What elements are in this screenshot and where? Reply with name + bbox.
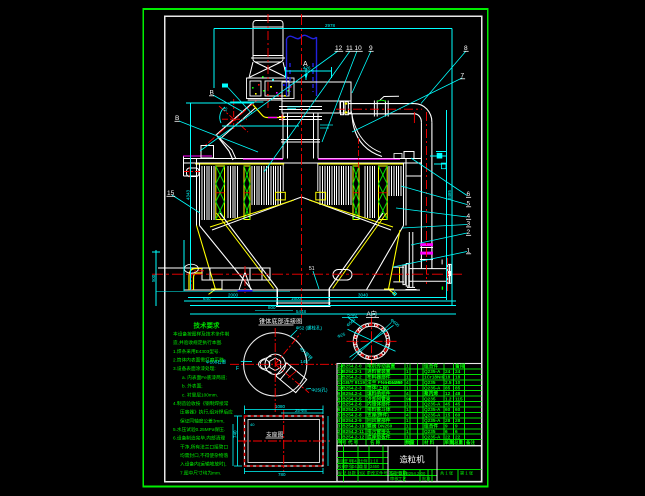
svg-text:25-Φ8: 25-Φ8: [295, 408, 307, 413]
svg-text:2000: 2000: [228, 292, 239, 297]
svg-text:1: 1: [338, 434, 341, 439]
svg-text:Φ25(孔): Φ25(孔): [311, 387, 328, 394]
svg-text:12: 12: [445, 391, 451, 396]
svg-text:9: 9: [455, 424, 458, 429]
svg-text:24: 24: [445, 369, 451, 374]
svg-text:1.2: 1.2: [445, 396, 452, 401]
svg-text:1: 1: [406, 364, 409, 369]
svg-text:4: 4: [406, 413, 409, 418]
svg-text:6.设备制造完毕,内部清理: 6.设备制造完毕,内部清理: [173, 435, 225, 442]
svg-text:96: 96: [406, 396, 412, 401]
svg-text:B254.2-12: B254.2-12: [342, 434, 364, 439]
svg-text:22: 22: [445, 434, 451, 439]
svg-text:A向: A向: [367, 310, 377, 318]
svg-text:Q235-A: Q235-A: [424, 434, 441, 439]
svg-text:2978: 2978: [325, 23, 336, 28]
svg-text:45: 45: [455, 402, 461, 407]
svg-text:60: 60: [455, 407, 461, 412]
svg-text:85: 85: [445, 385, 451, 390]
svg-text:1: 1: [406, 434, 409, 439]
svg-text:1600: 1600: [291, 296, 302, 301]
svg-text:22: 22: [455, 434, 461, 439]
svg-text:F: F: [236, 366, 239, 372]
svg-text:Q235-A: Q235-A: [424, 418, 441, 423]
svg-text:B254.2-6: B254.2-6: [342, 402, 362, 407]
svg-text:2.5: 2.5: [445, 380, 452, 385]
svg-text:15: 15: [445, 413, 451, 418]
svg-text:GB/T 9119: GB/T 9119: [342, 380, 365, 385]
svg-text:本设备按图样及技术条件制: 本设备按图样及技术条件制: [173, 331, 230, 338]
svg-text:a. 内表面Fe底漆两道;: a. 内表面Fe底漆两道;: [182, 374, 227, 381]
svg-text:工艺: 工艺: [398, 476, 406, 481]
svg-text:第 1 张: 第 1 张: [460, 470, 474, 477]
svg-text:Q235-A: Q235-A: [424, 385, 441, 390]
svg-text:4343: 4343: [186, 189, 191, 200]
svg-text:HG20593: HG20593: [386, 381, 402, 385]
svg-text:24: 24: [455, 369, 461, 374]
svg-text:Q235: Q235: [424, 380, 436, 385]
svg-text:5: 5: [338, 413, 341, 418]
svg-text:B254.2-9: B254.2-9: [342, 418, 362, 423]
svg-text:锥体底部连接图: 锥体底部连接图: [259, 318, 302, 326]
svg-text:1: 1: [406, 429, 409, 434]
svg-text:2.筒体内表面需打磨平整.: 2.筒体内表面需打磨平整.: [173, 357, 225, 364]
svg-text:6: 6: [338, 407, 341, 412]
svg-text:3.设备表面涂漆处理:: 3.设备表面涂漆处理:: [173, 365, 216, 372]
svg-text:145°: 145°: [300, 359, 310, 364]
svg-text:造,并验收规定执行本图.: 造,并验收规定执行本图.: [173, 339, 222, 346]
svg-text:B254.2-2: B254.2-2: [342, 375, 362, 380]
svg-text:共 1 张: 共 1 张: [440, 470, 454, 477]
svg-text:1: 1: [406, 385, 409, 390]
svg-text:4: 4: [338, 418, 341, 423]
svg-text:c. 衬里层100mm.: c. 衬里层100mm.: [182, 391, 218, 398]
svg-text:B254.2-3: B254.2-3: [342, 385, 362, 390]
svg-text:28: 28: [445, 418, 451, 423]
svg-text:18: 18: [455, 375, 461, 380]
svg-text:51: 51: [309, 266, 315, 272]
svg-text:均需封口,不得使杂物落: 均需封口,不得使杂物落: [180, 452, 228, 459]
svg-text:干净,所有法兰口接管口: 干净,所有法兰口接管口: [180, 443, 228, 450]
svg-text:1: 1: [406, 424, 409, 429]
svg-text:45: 45: [445, 402, 451, 407]
svg-text:Q235: Q235: [424, 429, 436, 434]
svg-text:800: 800: [268, 305, 276, 310]
svg-text:1:10: 1:10: [370, 458, 379, 463]
svg-text:造粒机: 造粒机: [399, 455, 425, 465]
svg-text:60: 60: [445, 407, 451, 412]
svg-text:1.焊条采用E4303型号.: 1.焊条采用E4303型号.: [173, 348, 220, 355]
svg-text:Q235-A: Q235-A: [424, 402, 441, 407]
svg-text:9: 9: [445, 424, 448, 429]
svg-text:Q235: Q235: [424, 396, 436, 401]
svg-text:b. 外表面;: b. 外表面;: [182, 383, 203, 390]
svg-text:5.水压试验0.25MPa保压.: 5.水压试验0.25MPa保压.: [173, 426, 225, 433]
svg-text:85: 85: [455, 385, 461, 390]
svg-text:B254.2-8: B254.2-8: [342, 413, 362, 418]
svg-text:7.图中尺寸均为mm.: 7.图中尺寸均为mm.: [180, 469, 221, 476]
svg-text:780: 780: [278, 472, 286, 477]
svg-text:1: 1: [406, 369, 409, 374]
svg-text:B254.2-4: B254.2-4: [342, 391, 362, 396]
svg-text:支座图: 支座图: [266, 431, 284, 439]
svg-text:B254.2-7: B254.2-7: [342, 407, 362, 412]
svg-text:6: 6: [455, 429, 458, 434]
svg-text:1: 1: [406, 418, 409, 423]
svg-text:Φ52 (螺栓孔): Φ52 (螺栓孔): [296, 325, 323, 332]
svg-text:740: 740: [232, 430, 237, 438]
svg-text:4: 4: [406, 380, 409, 385]
svg-text:重量: 重量: [359, 463, 367, 470]
svg-text:60: 60: [455, 413, 461, 418]
svg-text:9: 9: [338, 391, 341, 396]
svg-text:Q235-A: Q235-A: [424, 369, 441, 374]
svg-text:8: 8: [338, 396, 341, 401]
svg-text:1: 1: [406, 407, 409, 412]
svg-text:1: 1: [406, 375, 409, 380]
svg-text:18: 18: [445, 375, 451, 380]
svg-text:10: 10: [455, 380, 461, 385]
svg-text:B254.2-10: B254.2-10: [342, 424, 364, 429]
svg-text:入设备内(运输堆放时),: 入设备内(运输堆放时),: [180, 461, 227, 468]
svg-text:B254.2-5: B254.2-5: [342, 396, 362, 401]
svg-text:640: 640: [203, 296, 211, 301]
svg-text:28: 28: [455, 418, 461, 423]
svg-text:5448: 5448: [296, 309, 307, 314]
svg-text:426: 426: [303, 66, 311, 71]
svg-text:3040: 3040: [358, 292, 369, 297]
svg-text:2460: 2460: [370, 464, 380, 469]
svg-text:1Cr18Ni9: 1Cr18Ni9: [424, 375, 445, 380]
svg-text:40: 40: [250, 422, 255, 427]
svg-text:1080: 1080: [275, 404, 286, 409]
svg-text:4: 4: [406, 391, 409, 396]
svg-text:48: 48: [455, 391, 461, 396]
svg-text:技术要求: 技术要求: [194, 321, 221, 330]
svg-text:2: 2: [338, 429, 341, 434]
svg-text:B254.2-11: B254.2-11: [342, 429, 364, 434]
svg-text:6: 6: [445, 429, 448, 434]
svg-text:1: 1: [406, 402, 409, 407]
svg-text:压容器》执行,组对焊后应: 压容器》执行,组对焊后应: [180, 409, 233, 416]
svg-text:115: 115: [455, 396, 463, 401]
svg-text:Q235-A: Q235-A: [424, 413, 441, 418]
svg-text:7: 7: [338, 402, 341, 407]
svg-text:3: 3: [338, 424, 341, 429]
svg-text:4.制造验收按《钢制焊接常: 4.制造验收按《钢制焊接常: [173, 400, 229, 407]
svg-text:保证同轴度公差3mm,: 保证同轴度公差3mm,: [180, 417, 225, 424]
svg-text:B254.2-0: B254.2-0: [342, 364, 362, 369]
svg-text:3485: 3485: [447, 189, 452, 200]
svg-text:500: 500: [151, 274, 156, 282]
svg-text:Q235-A: Q235-A: [424, 407, 441, 412]
svg-text:B254.2-1: B254.2-1: [342, 369, 362, 374]
svg-text:批准: 批准: [422, 475, 430, 482]
